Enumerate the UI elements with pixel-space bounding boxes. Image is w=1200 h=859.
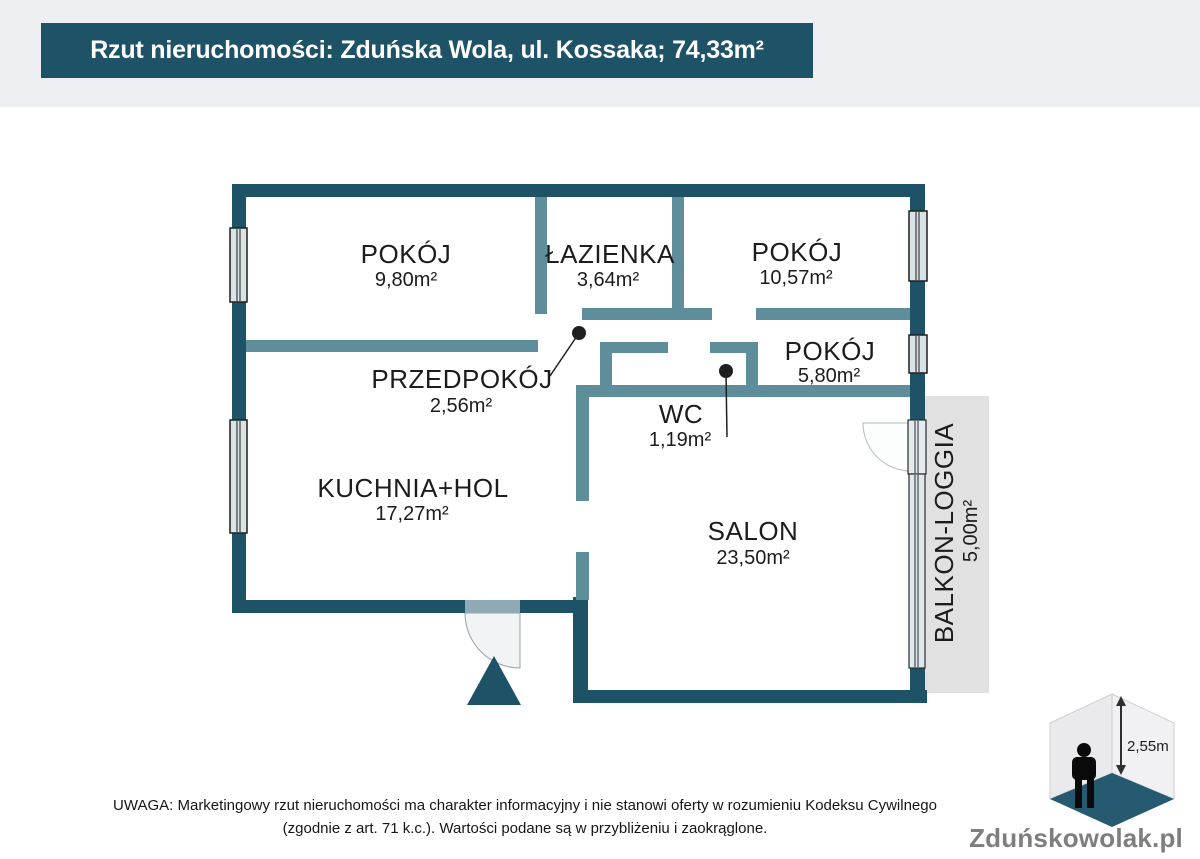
- room-area-przedpokoj: 2,56m²: [430, 395, 493, 417]
- wall-exterior-top: [232, 184, 925, 197]
- room-area-pokoj3: 5,80m²: [798, 365, 861, 387]
- wall-room1-bottom: [246, 340, 538, 352]
- wall-bathroom-bottom: [582, 308, 712, 320]
- balcony-door-leaf: [908, 420, 926, 474]
- window-kitchen: [230, 420, 247, 533]
- disclaimer: UWAGA: Marketingowy rzut nieruchomości m…: [75, 794, 975, 840]
- room-area-salon: 23,50m²: [716, 547, 790, 569]
- ceiling-height-label: 2,55m: [1127, 738, 1169, 755]
- room-area-pokoj2: 10,57m²: [759, 267, 833, 289]
- przedpokoj-leader-line: [550, 336, 577, 376]
- room-area-wc: 1,19m²: [649, 429, 712, 451]
- brand-wordmark: Zduńskowolak.pl: [930, 823, 1183, 854]
- wall-wc-left: [600, 342, 612, 386]
- wall-kitchen-salon-divider-upper: [576, 385, 589, 501]
- wall-salon-left-lower: [573, 597, 588, 703]
- window-room2: [909, 211, 927, 281]
- wall-salon-bottom: [573, 690, 927, 703]
- room-label-balkon: BALKON-LOGGIA: [929, 423, 959, 643]
- room-label-wc: WC: [659, 399, 703, 429]
- wc-leader-dot: [719, 364, 733, 378]
- floorplan-drawing: POKÓJ 9,80m² ŁAZIENKA 3,64m² POKÓJ 10,57…: [0, 0, 1200, 859]
- room-label-pokoj2: POKÓJ: [752, 237, 843, 267]
- room-label-pokoj1: POKÓJ: [361, 239, 452, 269]
- balcony-door-swing-arc: [863, 423, 911, 471]
- room-area-kuchnia: 17,27m²: [375, 503, 449, 525]
- room-area-pokoj1: 9,80m²: [375, 269, 438, 291]
- room-label-pokoj3: POKÓJ: [785, 336, 876, 366]
- wall-room2-bottom: [756, 308, 910, 320]
- room-label-kuchnia: KUCHNIA+HOL: [317, 473, 508, 503]
- room-label-przedpokoj: PRZEDPOKÓJ: [371, 364, 552, 394]
- disclaimer-line-2: (zgodnie z art. 71 k.c.). Wartości podan…: [75, 817, 975, 840]
- disclaimer-line-1: UWAGA: Marketingowy rzut nieruchomości m…: [75, 794, 975, 817]
- balcony-window: [909, 474, 925, 668]
- floorplan-page: Rzut nieruchomości: Zduńska Wola, ul. Ko…: [0, 0, 1200, 859]
- entrance-door-leaf: [465, 600, 520, 613]
- window-room3: [909, 335, 927, 373]
- room-label-lazienka: ŁAZIENKA: [545, 239, 675, 269]
- room-area-lazienka: 3,64m²: [577, 269, 640, 291]
- room-label-salon: SALON: [708, 516, 799, 546]
- logo-room-icon: 2,55m: [1050, 694, 1174, 827]
- window-room1: [230, 228, 247, 302]
- wall-kitchen-bottom-left: [232, 600, 465, 613]
- wc-leader-line: [726, 374, 727, 437]
- wall-kitchen-salon-divider-lower: [576, 552, 589, 600]
- wall-kitchen-bottom-right: [520, 600, 575, 613]
- room-area-balkon: 5,00m²: [960, 500, 982, 563]
- przedpokoj-leader-dot: [572, 326, 586, 340]
